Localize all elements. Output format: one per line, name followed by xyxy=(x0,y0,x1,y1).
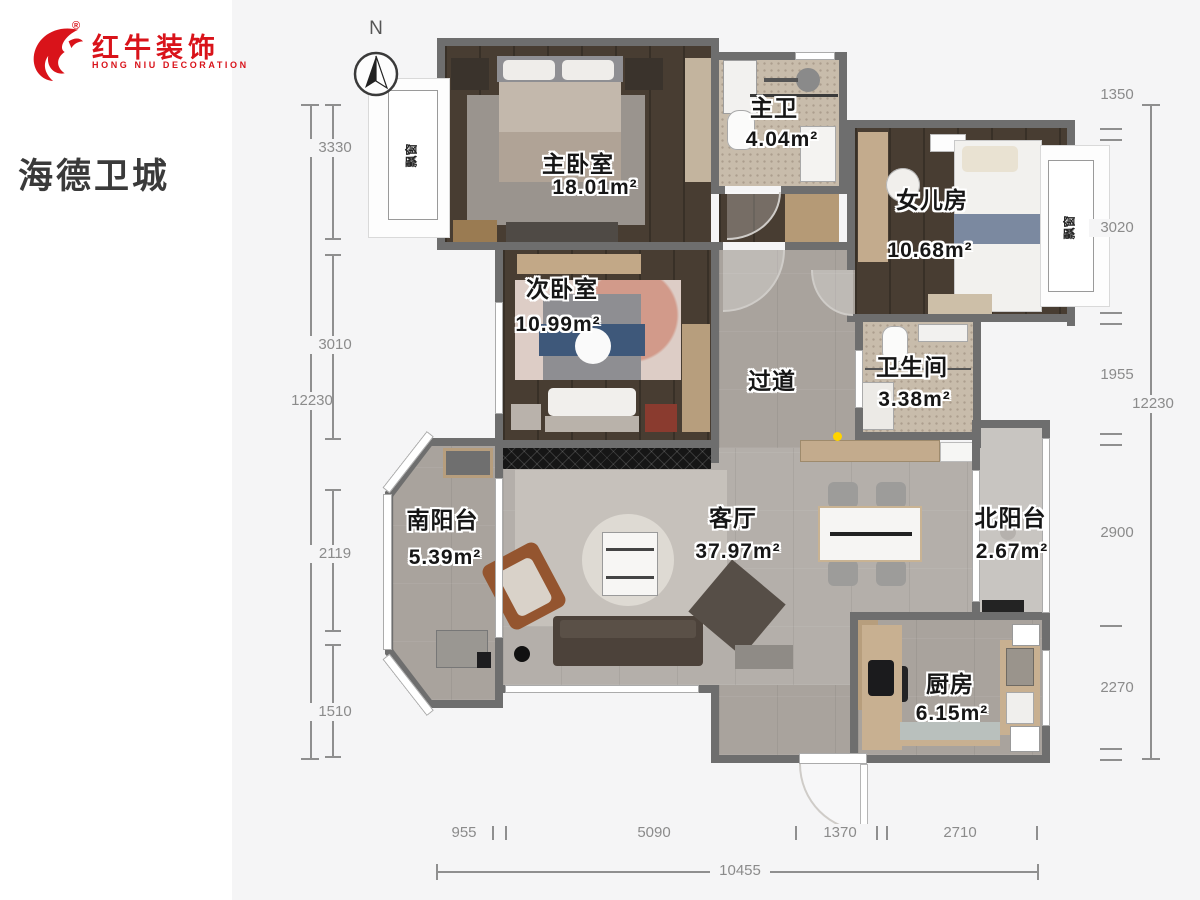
dim-left-2: 3010 xyxy=(307,336,363,354)
room-label-bathroom: 卫生间 xyxy=(852,355,972,380)
dim-left-3: 2119 xyxy=(307,545,363,563)
dim-left-1: 3330 xyxy=(307,139,363,157)
marker-dot xyxy=(833,432,842,441)
kitchen-lower-counter xyxy=(900,722,1000,746)
room-label-second-bedroom: 次卧室 xyxy=(497,277,627,302)
room-label-living-room: 客厅 xyxy=(683,506,783,531)
dimension-tick xyxy=(886,826,888,840)
dim-right-3: 1955 xyxy=(1089,366,1145,384)
wall xyxy=(847,120,855,270)
balcony-cabinet xyxy=(443,448,493,478)
nightstand xyxy=(645,404,677,432)
window xyxy=(795,52,835,60)
room-label-master-bedroom: 主卧室 xyxy=(513,152,643,177)
wall xyxy=(711,755,799,763)
brand-name-en: HONG NIU DECORATION xyxy=(92,60,249,70)
kitchen-door-swing xyxy=(1012,624,1040,646)
dim-right-5: 2270 xyxy=(1089,679,1145,697)
entry-floor xyxy=(719,685,867,755)
bay-window-label: 飘窗 xyxy=(403,143,420,167)
room-area-second-bedroom: 10.99m² xyxy=(498,313,618,336)
window xyxy=(505,685,699,693)
wardrobe xyxy=(682,324,710,432)
project-title: 海德卫城 xyxy=(18,148,170,199)
room-label-hallway: 过道 xyxy=(722,369,822,394)
side-table xyxy=(735,645,793,669)
dimension-tick xyxy=(505,826,507,840)
bath-sink xyxy=(918,324,968,342)
room-area-kitchen: 6.15m² xyxy=(897,702,1007,725)
dining-chair xyxy=(828,560,858,586)
dimension-tick xyxy=(436,864,438,880)
bay-window-left: 飘窗 xyxy=(388,90,438,220)
room-area-bathroom: 3.38m² xyxy=(857,388,972,411)
kitchen-door-swing xyxy=(1010,726,1040,752)
room-area-living-room: 37.97m² xyxy=(678,540,798,563)
compass-north-label: N xyxy=(369,18,383,39)
room-label-kitchen: 厨房 xyxy=(900,672,1000,697)
coffee-table xyxy=(602,532,658,596)
dimension-tick xyxy=(325,489,341,491)
sofa-cushions xyxy=(560,620,696,638)
dim-right-total: 12230 xyxy=(1124,395,1182,413)
bay-window-label: 飘窗 xyxy=(1061,215,1078,239)
dimension-tick xyxy=(1100,433,1122,446)
room-area-daughter-room: 10.68m² xyxy=(870,239,990,262)
dimension-line xyxy=(332,645,334,758)
wall xyxy=(847,314,1075,322)
dim-bottom-4: 2710 xyxy=(932,824,988,842)
wall xyxy=(850,755,1050,763)
wall xyxy=(711,242,719,463)
dishwasher xyxy=(1006,692,1034,724)
dimension-tick xyxy=(1100,312,1122,325)
pillow xyxy=(962,146,1018,172)
dim-bottom-3: 1370 xyxy=(812,824,868,842)
dim-bottom-total: 10455 xyxy=(710,862,770,880)
wall xyxy=(495,440,719,448)
registered-mark: ® xyxy=(72,20,80,32)
dimension-tick xyxy=(1142,758,1160,760)
corridor-wardrobe xyxy=(785,192,839,242)
dimension-tick xyxy=(325,630,341,632)
dimension-tick xyxy=(301,104,319,106)
dimension-line xyxy=(332,105,334,240)
shoe-cabinet xyxy=(800,440,940,462)
pillow xyxy=(562,60,614,80)
shower-head xyxy=(796,68,820,92)
coffee-table-line xyxy=(606,576,654,579)
coffee-table-line xyxy=(606,548,654,551)
dining-chair xyxy=(828,482,858,508)
dimension-tick xyxy=(325,644,341,646)
wall xyxy=(847,120,1075,128)
room-label-master-bath: 主卫 xyxy=(724,96,824,121)
wall xyxy=(711,693,719,763)
dimension-tick xyxy=(1037,864,1039,880)
wall xyxy=(711,38,719,194)
utility-box xyxy=(477,652,491,668)
dimension-tick xyxy=(1142,104,1160,106)
dim-right-1: 1350 xyxy=(1089,86,1145,104)
wall xyxy=(972,420,1050,428)
wall xyxy=(437,242,719,250)
dimension-tick xyxy=(492,826,494,840)
entry-door-arc xyxy=(799,764,867,832)
entry-threshold xyxy=(799,753,867,764)
shower-arm xyxy=(764,78,798,82)
dining-chair xyxy=(876,482,906,508)
dimension-tick xyxy=(325,238,341,240)
pillow xyxy=(503,60,555,80)
dimension-tick xyxy=(1100,625,1122,627)
wall xyxy=(855,432,981,440)
nightstand xyxy=(511,404,541,430)
wall xyxy=(850,612,1050,620)
room-label-north-balcony: 北阳台 xyxy=(958,506,1063,531)
dim-right-2: 3020 xyxy=(1089,219,1145,237)
dim-bottom-1: 955 xyxy=(436,824,492,842)
room-area-south-balcony: 5.39m² xyxy=(390,546,500,569)
dimension-tick xyxy=(1100,128,1122,141)
bedroom-desk xyxy=(453,220,497,242)
cabinet xyxy=(940,442,974,462)
daughter-cabinet xyxy=(928,294,992,314)
second-bed-headboard xyxy=(545,416,639,432)
brand-panel: ® 红牛装饰 HONG NIU DECORATION 海德卫城 xyxy=(0,0,232,900)
dimension-tick xyxy=(325,438,341,440)
room-area-master-bath: 4.04m² xyxy=(727,128,837,151)
room-label-daughter-room: 女儿房 xyxy=(867,188,997,213)
wall xyxy=(437,38,719,46)
dimension-tick xyxy=(795,826,797,840)
dimension-tick xyxy=(301,758,319,760)
kitchen-sink xyxy=(1006,648,1034,686)
dimension-tick xyxy=(1100,748,1122,761)
compass: N xyxy=(352,14,400,106)
dimension-tick xyxy=(325,254,341,256)
wall xyxy=(719,242,723,250)
wall xyxy=(785,242,847,250)
dimension-line xyxy=(1150,105,1152,760)
room-label-south-balcony: 南阳台 xyxy=(390,508,495,533)
window xyxy=(1042,650,1050,726)
dimension-line xyxy=(310,105,312,760)
floorplan-page: ® 红牛装饰 HONG NIU DECORATION 海德卫城 xyxy=(0,0,1200,900)
dimension-tick xyxy=(325,756,341,758)
wall xyxy=(719,186,725,194)
entry-door-leaf xyxy=(860,764,868,832)
wall xyxy=(855,314,863,350)
dimension-tick xyxy=(876,826,878,840)
dim-left-4: 1510 xyxy=(307,703,363,721)
bedroom-bench xyxy=(506,222,618,242)
room-area-north-balcony: 2.67m² xyxy=(957,540,1067,563)
nightstand xyxy=(451,58,489,90)
wall xyxy=(781,186,839,194)
company-logo: ® 红牛装饰 HONG NIU DECORATION xyxy=(26,24,226,84)
hongniu-bull-icon xyxy=(26,24,84,82)
dimension-tick xyxy=(325,104,341,106)
bay-window-right: 飘窗 xyxy=(1048,160,1094,292)
floor-lamp xyxy=(514,646,530,662)
shelf xyxy=(517,254,641,274)
dimension-tick xyxy=(1036,826,1038,840)
wall xyxy=(839,52,847,194)
pillow xyxy=(548,388,636,416)
wall xyxy=(850,612,858,763)
wardrobe xyxy=(685,58,711,182)
room-area-master-bedroom: 18.01m² xyxy=(535,176,655,199)
dim-right-4: 2900 xyxy=(1089,524,1145,542)
dim-bottom-2: 5090 xyxy=(626,824,682,842)
cooktop xyxy=(868,660,894,696)
tv-wall xyxy=(503,447,711,469)
nightstand xyxy=(625,58,663,90)
dining-chair xyxy=(876,560,906,586)
dining-table-runner xyxy=(830,532,912,536)
balcony-opening xyxy=(972,470,980,602)
